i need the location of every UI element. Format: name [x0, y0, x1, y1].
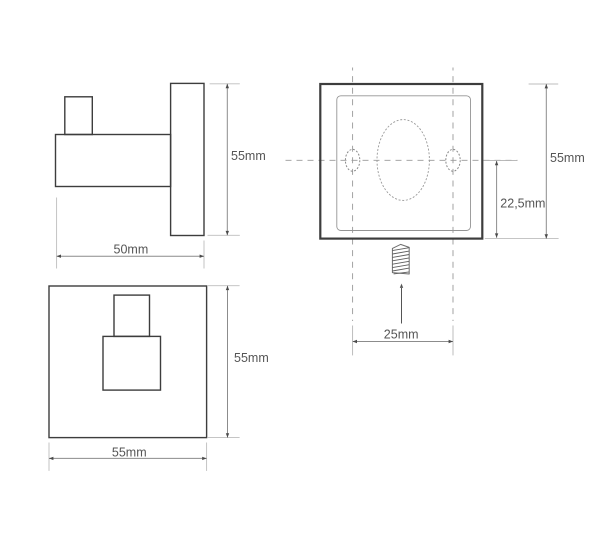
svg-text:55mm: 55mm — [234, 351, 269, 365]
svg-text:50mm: 50mm — [114, 242, 149, 256]
svg-text:55mm: 55mm — [231, 149, 266, 163]
svg-text:22,5mm: 22,5mm — [500, 197, 545, 211]
svg-text:55mm: 55mm — [550, 151, 585, 165]
svg-text:55mm: 55mm — [112, 445, 147, 459]
svg-text:25mm: 25mm — [384, 328, 419, 342]
